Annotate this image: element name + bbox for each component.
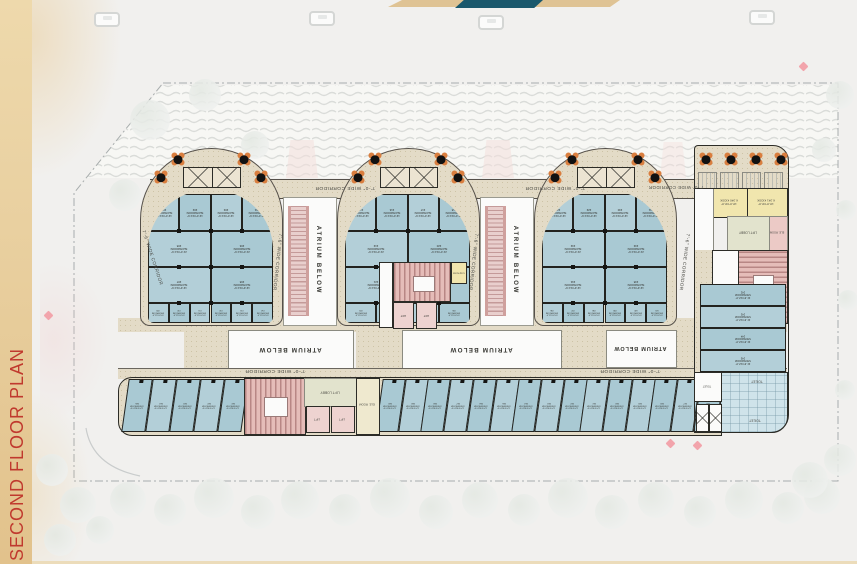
door-tick: [461, 380, 465, 383]
showroom-label: 10'-0"X11'-0"SHOWROOM226: [440, 304, 469, 322]
pergola-icon: [183, 167, 241, 188]
showroom-cell: 12'-0"X13'-6"SHOWROOM201: [148, 194, 179, 231]
showroom-cell: 12'-0"X13'-6"SHOWROOM231: [636, 194, 667, 231]
bottom-row-block: 12'-0"X21'-6"SHOWROOM26512'-0"X21'-6"SHO…: [118, 377, 722, 436]
shaft-box: [709, 404, 722, 432]
kiosk-label: K.342 KIOSK: [453, 272, 465, 274]
atrium-below-label: ATRIUM BELOW: [614, 345, 667, 351]
floor-plan-page: ATRIUM BELOW ATRIUM BELOW ATRIUM BELOW 1…: [0, 0, 857, 564]
showroom-label-text: 12'-0"X21'-6"SHOWROOM247: [678, 402, 692, 409]
showroom-label-text: 21'-0"X14'-6"SHOWROOM205: [171, 245, 188, 254]
lift-label: LIFT: [314, 417, 320, 420]
corridor-label: 7'-0" WIDE CORRIDOR: [245, 368, 305, 373]
showroom-label: 21'-6"X12'-0"SHOWROOM244: [701, 329, 785, 349]
lift-label: LIFT: [339, 417, 345, 420]
showroom-cell: 10'-0"X11'-0"SHOWROOM238: [584, 303, 605, 323]
showroom-label: 12'-0"X13'-6"SHOWROOM228: [543, 195, 572, 230]
column-dot: [374, 301, 378, 305]
toilet-label: TOILET: [703, 385, 711, 388]
showroom-cell: 10'-0"X11'-0"SHOWROOM213: [231, 303, 252, 323]
door-tick: [139, 380, 143, 383]
escalator: [288, 206, 309, 316]
showroom-label: 10'-0"X11'-0"SHOWROOM239: [606, 304, 625, 322]
showroom-label-text: 12'-0"X13'-6"SHOWROOM201: [155, 208, 172, 217]
showroom-label-text: 12'-0"X13'-6"SHOWROOM203: [218, 208, 235, 217]
bridge: [675, 324, 695, 370]
showroom-label-text: 12'-0"X13'-6"SHOWROOM216: [383, 208, 400, 217]
showroom-cell: 12'-6"X14'-6"SHOWROOM208: [211, 267, 274, 303]
showroom-label-text: 12'-0"X13'-6"SHOWROOM230: [612, 208, 629, 217]
showroom-label: 12'-6"X14'-6"SHOWROOM234: [543, 268, 604, 302]
showroom-label: 21'-0"X14'-6"SHOWROOM219: [346, 232, 407, 266]
pod-lobby-strip: [379, 262, 393, 328]
showroom-label: 10'-0"X11'-0"SHOWROOM210: [170, 304, 189, 322]
showroom-label: 12'-0"X13'-6"SHOWROOM202: [180, 195, 209, 230]
showroom-cell: 10'-0"X11'-0"SHOWROOM236: [542, 303, 563, 323]
showroom-cell: 12'-0"X13'-6"SHOWROOM204: [242, 194, 273, 231]
showroom-label: 10'-0"X11'-0"SHOWROOM241: [647, 304, 666, 322]
showroom-label: 12'-0"X13'-6"SHOWROOM203: [212, 195, 241, 230]
showroom-label-text: 12'-0"X13'-6"SHOWROOM228: [549, 208, 566, 217]
showroom-label-text: 12'-6"X14'-6"SHOWROOM208: [233, 281, 250, 290]
showroom-cell: 10'-0"X11'-0"SHOWROOM211: [190, 303, 211, 323]
showroom-label-text: 10'-0"X11'-0"SHOWROOM241: [650, 310, 662, 317]
showroom-label-text: 10'-0"X11'-0"SHOWROOM240: [630, 310, 642, 317]
showroom-cell: 10'-0"X11'-0"SHOWROOM237: [563, 303, 584, 323]
lift-label: LIFT: [401, 314, 406, 317]
bridge: [560, 324, 606, 370]
showroom-label-text: 12'-6"X14'-6"SHOWROOM207: [171, 281, 188, 290]
showroom-label-text: 12'-0"X21'-6"SHOWROOM254: [519, 402, 533, 409]
showroom-label: 10'-0"X11'-0"SHOWROOM213: [232, 304, 251, 322]
showroom-cell: 12'-6"X14'-6"SHOWROOM234: [542, 267, 605, 303]
kiosk-room: K.342 KIOSK: [451, 262, 467, 284]
showroom-label: 12'-0"X13'-6"SHOWROOM215: [346, 195, 375, 230]
planter: [742, 172, 761, 189]
column-dot: [177, 301, 181, 305]
showroom-label-text: 21'-6"X12'-0"SHOWROOM245: [735, 357, 751, 365]
showroom-label: 21'-6"X12'-0"SHOWROOM242: [701, 285, 785, 305]
showroom-label: 12'-0"X13'-6"SHOWROOM229: [574, 195, 603, 230]
showroom-label-text: 12'-0"X13'-6"SHOWROOM229: [580, 208, 597, 217]
showroom-cell: 21'-0"X14'-6"SHOWROOM205: [148, 231, 211, 267]
atrium-below-label: ATRIUM BELOW: [315, 226, 321, 294]
corridor-label: 7'-0" WIDE CORRIDOR: [648, 185, 703, 190]
door-tick: [211, 380, 215, 383]
door-tick: [642, 380, 646, 383]
column-dot: [571, 229, 575, 233]
showroom-label-text: 12'-0"X13'-6"SHOWROOM217: [415, 208, 432, 217]
canopy-below: [482, 140, 514, 178]
showroom-label: 10'-0"X11'-0"SHOWROOM223: [346, 304, 375, 322]
showroom-label-text: 12'-0"X21'-6"SHOWROOM248: [656, 402, 670, 409]
showroom-label: 12'-0"X13'-6"SHOWROOM217: [409, 195, 438, 230]
bridge: [356, 324, 402, 370]
door-tick: [415, 380, 419, 383]
column-dot: [603, 229, 607, 233]
showroom-label: 12'-0"X13'-6"SHOWROOM216: [377, 195, 406, 230]
showroom-label-text: 10'-0"X11'-0"SHOWROOM223: [354, 310, 366, 317]
showroom-label-text: 12'-6"X14'-6"SHOWROOM234: [565, 281, 582, 290]
wing-store-room: [712, 250, 739, 288]
showroom-label-text: 10'-0"X11'-0"SHOWROOM226: [448, 310, 460, 317]
showroom-label-text: 12'-0"X21'-6"SHOWROOM259: [406, 402, 420, 409]
showroom-label-text: 12'-0"X21'-6"SHOWROOM250: [610, 402, 624, 409]
showroom-label-text: 21'-0"X14'-6"SHOWROOM233: [627, 245, 644, 254]
column-dot: [374, 229, 378, 233]
utility-room-label: ELE. ROOM: [359, 403, 375, 406]
showroom-cell: 12'-0"X13'-6"SHOWROOM218: [439, 194, 470, 231]
wing-corridor-room: [694, 188, 714, 252]
showroom-label: 12'-0"X13'-6"SHOWROOM201: [149, 195, 178, 230]
door-tick: [163, 380, 167, 383]
showroom-label-text: 12'-0"X21'-6"SHOWROOM263: [178, 402, 192, 409]
showroom-cell: 12'-0"X13'-6"SHOWROOM229: [573, 194, 604, 231]
column-dot: [240, 229, 244, 233]
column-dot: [209, 229, 213, 233]
door-tick: [688, 380, 692, 383]
pergola-x: [212, 168, 241, 187]
lift-cell: LIFT: [393, 302, 414, 329]
kiosk-label: 13'-8"X9'-8" K.341 KIOSK: [757, 199, 775, 205]
escalator: [485, 206, 506, 316]
column-dot: [571, 301, 575, 305]
planter: [720, 172, 739, 189]
pergola-x: [409, 168, 438, 187]
lift-lobby: [727, 216, 771, 252]
pod-cells: 12'-0"X13'-6"SHOWROOM20112'-0"X13'-6"SHO…: [148, 190, 273, 323]
corridor-label: 7'-0" WIDE CORRIDOR: [525, 185, 585, 190]
door-tick: [551, 380, 555, 383]
showroom-label: 12'-0"X13'-6"SHOWROOM231: [637, 195, 666, 230]
showroom-label: 10'-0"X11'-0"SHOWROOM240: [626, 304, 645, 322]
showroom-label: 21'-0"X14'-6"SHOWROOM220: [409, 232, 470, 266]
staircase: [244, 378, 306, 435]
showroom-label-text: 21'-0"X14'-6"SHOWROOM220: [430, 245, 447, 254]
showroom-label-text: 12'-0"X21'-6"SHOWROOM252: [565, 402, 579, 409]
corridor-label: 7'-0" WIDE CORRIDOR: [315, 185, 375, 190]
showroom-label-text: 12'-0"X13'-6"SHOWROOM202: [186, 208, 203, 217]
pod-cells: 12'-0"X13'-6"SHOWROOM22812'-0"X13'-6"SHO…: [542, 190, 667, 323]
showroom-label-text: 12'-0"X21'-6"SHOWROOM249: [633, 402, 647, 409]
showroom-cell: 10'-0"X11'-0"SHOWROOM223: [345, 303, 376, 323]
pergola-icon: [577, 167, 635, 188]
showroom-label-text: 12'-0"X13'-6"SHOWROOM231: [643, 208, 660, 217]
atrium-below-label: ATRIUM BELOW: [258, 346, 321, 353]
lift-lobby-label: LIFT LOBBY: [320, 390, 339, 394]
showroom-cell: 21'-6"X12'-0"SHOWROOM244: [700, 328, 786, 350]
door-tick: [235, 380, 239, 383]
showroom-cell: 12'-0"X13'-6"SHOWROOM202: [179, 194, 210, 231]
ele-room-label: ELE. ROOM: [770, 231, 784, 234]
showroom-cell: 10'-0"X11'-0"SHOWROOM210: [169, 303, 190, 323]
kiosk-label: 10'-0"X9'-8" K.340 KIOSK: [720, 199, 738, 205]
showroom-label-text: 12'-0"X21'-6"SHOWROOM255: [497, 402, 511, 409]
ele-room: [769, 216, 788, 252]
showroom-cell: 12'-0"X13'-6"SHOWROOM216: [376, 194, 407, 231]
showroom-label: 12'-0"X13'-6"SHOWROOM230: [606, 195, 635, 230]
pergola-x: [184, 168, 212, 187]
car-icon: [309, 11, 335, 26]
pergola-x: [578, 168, 606, 187]
door-tick: [529, 380, 533, 383]
corridor-label: 7'-0" WIDE CORRIDOR: [600, 368, 660, 373]
door-tick: [392, 380, 396, 383]
showroom-cell: 21'-6"X12'-0"SHOWROOM242: [700, 284, 786, 306]
showroom-label-text: 12'-0"X21'-6"SHOWROOM257: [451, 402, 465, 409]
kiosk-code: K.340 KIOSK: [720, 199, 738, 202]
showroom-cell: 21'-6"X12'-0"SHOWROOM243: [700, 306, 786, 328]
column-dot: [603, 301, 607, 305]
showroom-cell: 21'-0"X14'-6"SHOWROOM232: [542, 231, 605, 267]
showroom-cell: 21'-6"X12'-0"SHOWROOM245: [700, 350, 786, 372]
showroom-label: 10'-0"X11'-0"SHOWROOM236: [543, 304, 562, 322]
showroom-label: 10'-0"X11'-0"SHOWROOM209: [149, 304, 168, 322]
planter: [764, 172, 783, 189]
stair-landing: [413, 276, 435, 292]
showroom-label-text: 21'-0"X14'-6"SHOWROOM206: [233, 245, 250, 254]
showroom-cell: 10'-0"X11'-0"SHOWROOM241: [646, 303, 667, 323]
showroom-label: 21'-6"X12'-0"SHOWROOM243: [701, 307, 785, 327]
column-dot: [634, 265, 638, 269]
showroom-label-text: 12'-0"X13'-6"SHOWROOM215: [352, 208, 369, 217]
staircase: [393, 262, 451, 302]
showroom-label-text: 10'-0"X11'-0"SHOWROOM209: [152, 310, 164, 317]
column-dot: [240, 265, 244, 269]
showroom-cell: 21'-0"X14'-6"SHOWROOM206: [211, 231, 274, 267]
showroom-label-text: 10'-0"X11'-0"SHOWROOM239: [609, 310, 621, 317]
column-dot: [177, 265, 181, 269]
showroom-label: 12'-0"X13'-6"SHOWROOM218: [440, 195, 469, 230]
pergola-x: [606, 168, 635, 187]
column-dot: [571, 265, 575, 269]
showroom-label-text: 12'-0"X21'-6"SHOWROOM262: [202, 402, 216, 409]
showroom-cell: 12'-0"X13'-6"SHOWROOM217: [408, 194, 439, 231]
column-dot: [634, 301, 638, 305]
showroom-cell: 10'-0"X11'-0"SHOWROOM239: [605, 303, 626, 323]
showroom-label-text: 10'-0"X11'-0"SHOWROOM210: [173, 310, 185, 317]
door-tick: [506, 380, 510, 383]
showroom-label-text: 12'-6"X14'-6"SHOWROOM235: [627, 281, 644, 290]
showroom-cell: 21'-0"X14'-6"SHOWROOM233: [605, 231, 668, 267]
page-title: SECOND FLOOR PLAN: [7, 348, 28, 561]
pergola-icon: [380, 167, 438, 188]
column-dot: [177, 229, 181, 233]
lift-label: LIFT: [424, 314, 429, 317]
showroom-label-text: 10'-0"X11'-0"SHOWROOM237: [567, 310, 579, 317]
showroom-label-text: 12'-0"X21'-6"SHOWROOM251: [587, 402, 601, 409]
showroom-label-text: 10'-0"X11'-0"SHOWROOM213: [236, 310, 248, 317]
showroom-cell: 10'-0"X11'-0"SHOWROOM240: [625, 303, 646, 323]
showroom-label: 12'-0"X13'-6"SHOWROOM204: [243, 195, 272, 230]
bridge: [184, 324, 228, 370]
canopy-below: [286, 140, 318, 178]
toilet-label: TOILET: [749, 418, 761, 422]
column-dot: [374, 265, 378, 269]
showroom-label-text: 12'-0"X21'-6"SHOWROOM258: [429, 402, 443, 409]
showroom-label: 10'-0"X11'-0"SHOWROOM212: [212, 304, 231, 322]
toilet-label: TOILET: [751, 379, 763, 383]
showroom-cell: 12'-0"X13'-6"SHOWROOM230: [605, 194, 636, 231]
showroom-label-text: 10'-0"X11'-0"SHOWROOM214: [256, 310, 268, 317]
showroom-label: 21'-6"X12'-0"SHOWROOM245: [701, 351, 785, 371]
showroom-label-text: 21'-6"X12'-0"SHOWROOM242: [735, 291, 751, 299]
door-tick: [619, 380, 623, 383]
showroom-label-text: 12'-0"X21'-6"SHOWROOM264: [154, 402, 168, 409]
column-dot: [437, 229, 441, 233]
atrium-below-label: ATRIUM BELOW: [512, 226, 518, 294]
kiosk-code: K.341 KIOSK: [757, 199, 775, 202]
car-icon: [94, 12, 120, 27]
showroom-label-text: 21'-0"X14'-6"SHOWROOM232: [565, 245, 582, 254]
showroom-label-text: 10'-0"X11'-0"SHOWROOM236: [546, 310, 558, 317]
showroom-label-text: 21'-6"X12'-0"SHOWROOM243: [735, 313, 751, 321]
door-tick: [483, 380, 487, 383]
showroom-label-text: 21'-6"X12'-0"SHOWROOM244: [735, 335, 751, 343]
showroom-label: 12'-6"X14'-6"SHOWROOM235: [606, 268, 667, 302]
canopy-below: [660, 142, 686, 178]
column-dot: [603, 265, 607, 269]
lift-cell: LIFT: [416, 302, 437, 329]
showroom-label: 21'-0"X14'-6"SHOWROOM232: [543, 232, 604, 266]
showroom-label-text: 12'-0"X21'-6"SHOWROOM265: [130, 402, 144, 409]
showroom-label: 10'-0"X11'-0"SHOWROOM214: [253, 304, 272, 322]
showroom-label: 10'-0"X11'-0"SHOWROOM237: [564, 304, 583, 322]
showroom-label: 10'-0"X11'-0"SHOWROOM238: [585, 304, 604, 322]
pergola-x: [381, 168, 409, 187]
showroom-label-text: 12'-0"X21'-6"SHOWROOM253: [542, 402, 556, 409]
showroom-cell: 10'-0"X11'-0"SHOWROOM214: [252, 303, 273, 323]
showroom-label-text: 21'-0"X14'-6"SHOWROOM219: [368, 245, 385, 254]
showroom-label-text: 12'-0"X13'-6"SHOWROOM204: [249, 208, 266, 217]
showroom-label-text: 12'-0"X13'-6"SHOWROOM218: [446, 208, 463, 217]
atrium-below-label: ATRIUM BELOW: [449, 346, 512, 353]
car-icon: [749, 10, 775, 25]
column-dot: [209, 265, 213, 269]
kiosk-dims: 10'-0"X9'-8": [720, 202, 738, 205]
showroom-cell: 10'-0"X11'-0"SHOWROOM226: [439, 303, 470, 323]
kiosk-dims: 13'-8"X9'-8": [757, 202, 775, 205]
showroom-cell: 12'-0"X13'-6"SHOWROOM215: [345, 194, 376, 231]
showroom-cell: 10'-0"X11'-0"SHOWROOM212: [211, 303, 232, 323]
utility-room: [356, 378, 380, 435]
column-dot: [209, 301, 213, 305]
shaft-box: [696, 404, 709, 432]
showroom-cell: 12'-6"X14'-6"SHOWROOM235: [605, 267, 668, 303]
lift-lobby-label: LIFT LOBBY: [739, 230, 757, 233]
column-dot: [240, 301, 244, 305]
showroom-label: 21'-0"X14'-6"SHOWROOM233: [606, 232, 667, 266]
showroom-label: 21'-0"X14'-6"SHOWROOM205: [149, 232, 210, 266]
door-tick: [574, 380, 578, 383]
showroom-cell: 12'-0"X13'-6"SHOWROOM203: [211, 194, 242, 231]
showroom-label-text: 12'-0"X21'-6"SHOWROOM261: [226, 402, 240, 409]
door-tick: [597, 380, 601, 383]
showroom-label-text: 12'-0"X21'-6"SHOWROOM260: [383, 402, 397, 409]
teal-ribbon: [455, 0, 543, 8]
car-icon: [478, 15, 504, 30]
showroom-label-text: 10'-0"X11'-0"SHOWROOM211: [194, 310, 206, 317]
showroom-label-text: 12'-0"X21'-6"SHOWROOM256: [474, 402, 488, 409]
showroom-label: 12'-6"X14'-6"SHOWROOM208: [212, 268, 273, 302]
showroom-label: 10'-0"X11'-0"SHOWROOM211: [191, 304, 210, 322]
showroom-label-text: 10'-0"X11'-0"SHOWROOM238: [588, 310, 600, 317]
showroom-cell: 12'-0"X13'-6"SHOWROOM228: [542, 194, 573, 231]
showroom-label-text: 10'-0"X11'-0"SHOWROOM212: [215, 310, 227, 317]
showroom-cell: 10'-0"X11'-0"SHOWROOM209: [148, 303, 169, 323]
door-tick: [187, 380, 191, 383]
column-dot: [406, 229, 410, 233]
showroom-label: 21'-0"X14'-6"SHOWROOM206: [212, 232, 273, 266]
column-dot: [634, 229, 638, 233]
